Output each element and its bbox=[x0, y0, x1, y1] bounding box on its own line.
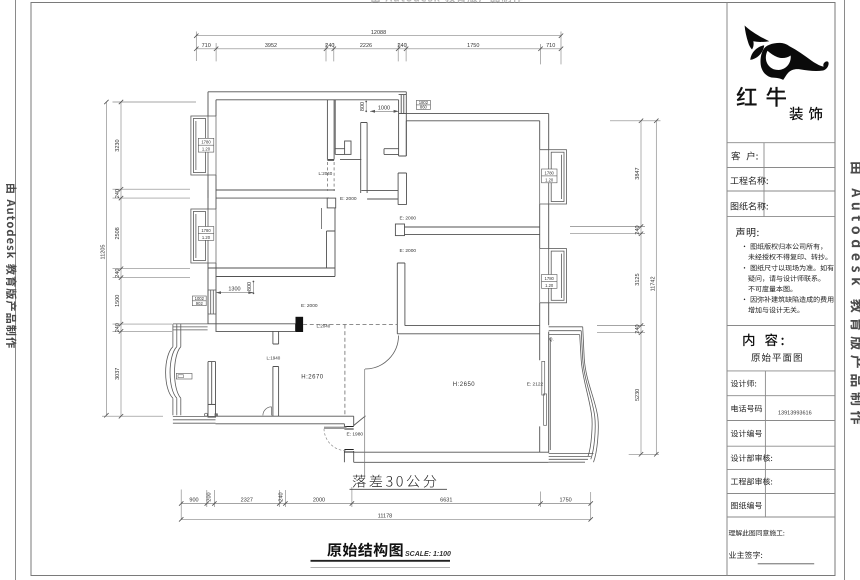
svg-text:1.20: 1.20 bbox=[545, 177, 554, 182]
svg-text:3847: 3847 bbox=[635, 167, 641, 179]
svg-text:1.20: 1.20 bbox=[202, 235, 211, 240]
svg-text:Q.: Q. bbox=[549, 337, 554, 342]
svg-text:1500: 1500 bbox=[115, 295, 121, 307]
svg-text:E: 2000: E: 2000 bbox=[340, 196, 357, 202]
svg-text:2000: 2000 bbox=[313, 498, 325, 504]
svg-text:1780: 1780 bbox=[201, 228, 211, 233]
svg-text:6631: 6631 bbox=[440, 498, 452, 504]
svg-text:H:2670: H:2670 bbox=[301, 374, 324, 380]
svg-text:2226: 2226 bbox=[360, 43, 372, 49]
svg-text:240: 240 bbox=[115, 189, 121, 198]
svg-text:H:2650: H:2650 bbox=[453, 382, 476, 388]
svg-text:1.20: 1.20 bbox=[202, 147, 211, 152]
svg-text:L:2040: L:2040 bbox=[317, 324, 331, 329]
svg-text:240: 240 bbox=[115, 269, 121, 278]
svg-text:2327: 2327 bbox=[241, 498, 253, 504]
svg-text:902: 902 bbox=[196, 301, 204, 306]
svg-text:800: 800 bbox=[247, 282, 253, 291]
svg-text:860: 860 bbox=[420, 105, 428, 110]
svg-text:13913993616: 13913993616 bbox=[778, 411, 812, 417]
svg-text:3037: 3037 bbox=[115, 368, 121, 380]
svg-text:900: 900 bbox=[189, 498, 198, 504]
svg-text:11178: 11178 bbox=[378, 514, 392, 520]
svg-text:240: 240 bbox=[115, 323, 121, 332]
svg-text:11742: 11742 bbox=[651, 276, 657, 291]
svg-text:1750: 1750 bbox=[559, 498, 571, 504]
svg-text:2508: 2508 bbox=[115, 227, 121, 239]
svg-text:12088: 12088 bbox=[371, 30, 386, 36]
svg-text:1780: 1780 bbox=[545, 276, 555, 281]
svg-text:710: 710 bbox=[202, 43, 211, 49]
svg-text:240: 240 bbox=[635, 225, 641, 234]
svg-text:11205: 11205 bbox=[101, 245, 107, 260]
svg-text:E: 2000: E: 2000 bbox=[400, 216, 417, 222]
svg-text:SCALE: 1:100: SCALE: 1:100 bbox=[405, 551, 451, 558]
svg-text:1000: 1000 bbox=[378, 105, 390, 111]
svg-text:L:2040: L:2040 bbox=[319, 171, 333, 176]
svg-text:240: 240 bbox=[325, 43, 334, 49]
svg-text:200: 200 bbox=[207, 492, 213, 501]
svg-text:710: 710 bbox=[546, 43, 555, 49]
svg-text:800: 800 bbox=[360, 102, 366, 111]
svg-text:1780: 1780 bbox=[545, 170, 555, 175]
svg-text:E: 2000: E: 2000 bbox=[400, 248, 417, 254]
svg-text:1.20: 1.20 bbox=[545, 283, 554, 288]
svg-text:3230: 3230 bbox=[115, 139, 121, 151]
svg-text:240: 240 bbox=[398, 43, 407, 49]
svg-text:3952: 3952 bbox=[265, 43, 277, 49]
svg-text:240: 240 bbox=[635, 324, 641, 333]
svg-text:5230: 5230 bbox=[635, 389, 641, 401]
svg-text:E: 2122: E: 2122 bbox=[527, 382, 544, 388]
svg-text:E: 1980: E: 1980 bbox=[347, 432, 364, 438]
svg-text:3125: 3125 bbox=[635, 273, 641, 285]
svg-text:1300: 1300 bbox=[228, 287, 240, 293]
svg-text:1780: 1780 bbox=[201, 140, 211, 145]
svg-text:L:1940: L:1940 bbox=[267, 356, 281, 361]
svg-text:E: 2000: E: 2000 bbox=[301, 303, 318, 309]
svg-text:240: 240 bbox=[278, 492, 284, 501]
svg-text:1750: 1750 bbox=[467, 43, 479, 49]
